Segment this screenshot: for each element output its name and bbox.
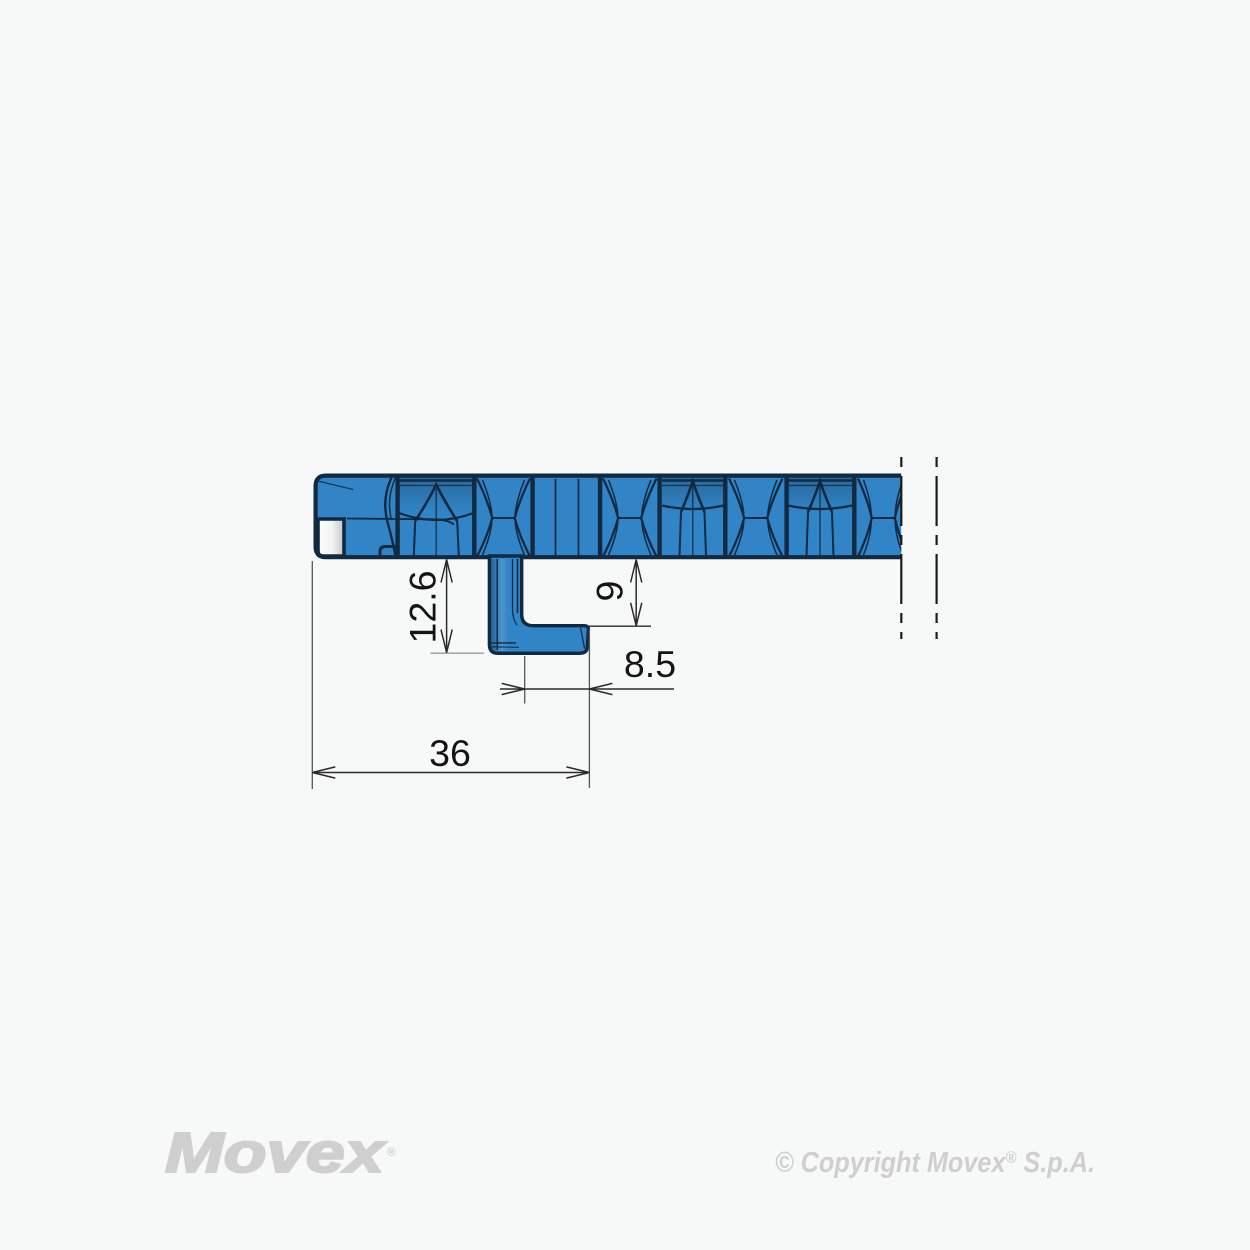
svg-text:12.6: 12.6 [402,571,444,644]
svg-text:®: ® [387,1145,396,1159]
svg-text:© Copyright Movex® S.p.A.: © Copyright Movex® S.p.A. [775,1147,1095,1179]
svg-text:8.5: 8.5 [624,643,676,685]
svg-text:Movex: Movex [165,1121,387,1184]
svg-text:9: 9 [589,581,631,602]
svg-text:36: 36 [429,732,471,774]
